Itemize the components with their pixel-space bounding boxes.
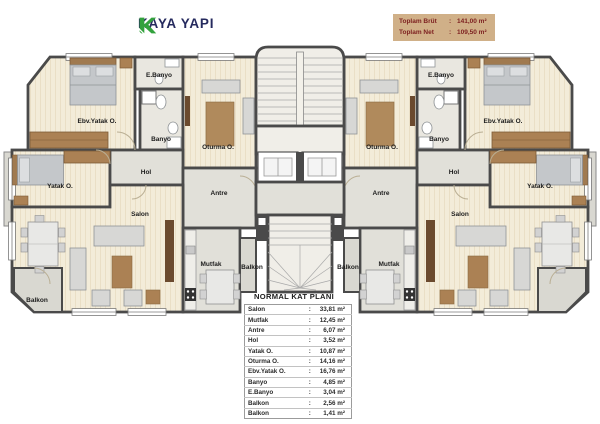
room-label-antre-right: Antre: [373, 190, 390, 197]
room-label-mutfak-right: Mutfak: [379, 261, 400, 268]
room-label-banyo-right: Banyo: [429, 136, 449, 143]
room-label-ebv-yatak-left: Ebv.Yatak O.: [78, 118, 117, 125]
area-table-row: Yatak O. : 10,87 m²: [245, 346, 352, 356]
room-label-mutfak-left: Mutfak: [201, 261, 222, 268]
room-label-hol-right: Hol: [449, 169, 460, 176]
right-unit: [344, 54, 596, 316]
elevator: [258, 152, 342, 182]
kaya-yapi-logo-icon: [138, 16, 157, 35]
core-stairwell: [256, 47, 344, 292]
area-table-row: Banyo : 4,85 m²: [245, 377, 352, 387]
area-table-row: E.Banyo : 3,04 m²: [245, 388, 352, 398]
room-label-antre-left: Antre: [211, 190, 228, 197]
room-label-balkon-left-small: Balkon: [241, 264, 263, 271]
area-table-title: NORMAL KAT PLANI: [244, 292, 354, 301]
room-label-yatak-right: Yatak O.: [527, 183, 553, 190]
area-table-row: Oturma O. : 14,16 m²: [245, 356, 352, 366]
room-label-oturma-right: Oturma O.: [366, 144, 398, 151]
area-table-row: Balkon : 2,56 m²: [245, 398, 352, 408]
room-label-hol-left: Hol: [141, 169, 152, 176]
area-table-body: Salon : 33,81 m² Mutfak : 12,45 m² Antre…: [245, 305, 352, 419]
area-table: NORMAL KAT PLANI Salon : 33,81 m² Mutfak…: [244, 292, 354, 419]
area-table-row: Ebv.Yatak O. : 16,76 m²: [245, 367, 352, 377]
area-table-row: Antre : 6,07 m²: [245, 325, 352, 335]
room-label-salon-left: Salon: [131, 211, 149, 218]
area-table-row: Mutfak : 12,45 m²: [245, 315, 352, 325]
room-label-oturma-left: Oturma O.: [202, 144, 234, 151]
totals-row: Toplam Brüt : 141,00 m²: [399, 17, 489, 28]
room-label-salon-right: Salon: [451, 211, 469, 218]
room-label-balkon-right-small: Balkon: [337, 264, 359, 271]
left-unit: [4, 54, 256, 316]
area-table-row: Hol : 3,52 m²: [245, 336, 352, 346]
room-label-e-banyo-right: E.Banyo: [428, 72, 454, 79]
room-label-banyo-left: Banyo: [151, 136, 171, 143]
room-label-balkon-left-corner: Balkon: [26, 297, 48, 304]
totals-rows: Toplam Brüt : 141,00 m² Toplam Net : 109…: [399, 17, 489, 38]
room-label-e-banyo-left: E.Banyo: [146, 72, 172, 79]
area-table-row: Salon : 33,81 m²: [245, 305, 352, 315]
brand-logo: KAYA YAPI: [138, 16, 214, 31]
totals-row: Toplam Net : 109,50 m²: [399, 28, 489, 39]
area-table-row: Balkon : 1,41 m²: [245, 408, 352, 418]
totals-box: Toplam Brüt : 141,00 m² Toplam Net : 109…: [393, 14, 495, 41]
room-label-ebv-yatak-right: Ebv.Yatak O.: [484, 118, 523, 125]
room-label-yatak-left: Yatak O.: [47, 183, 73, 190]
